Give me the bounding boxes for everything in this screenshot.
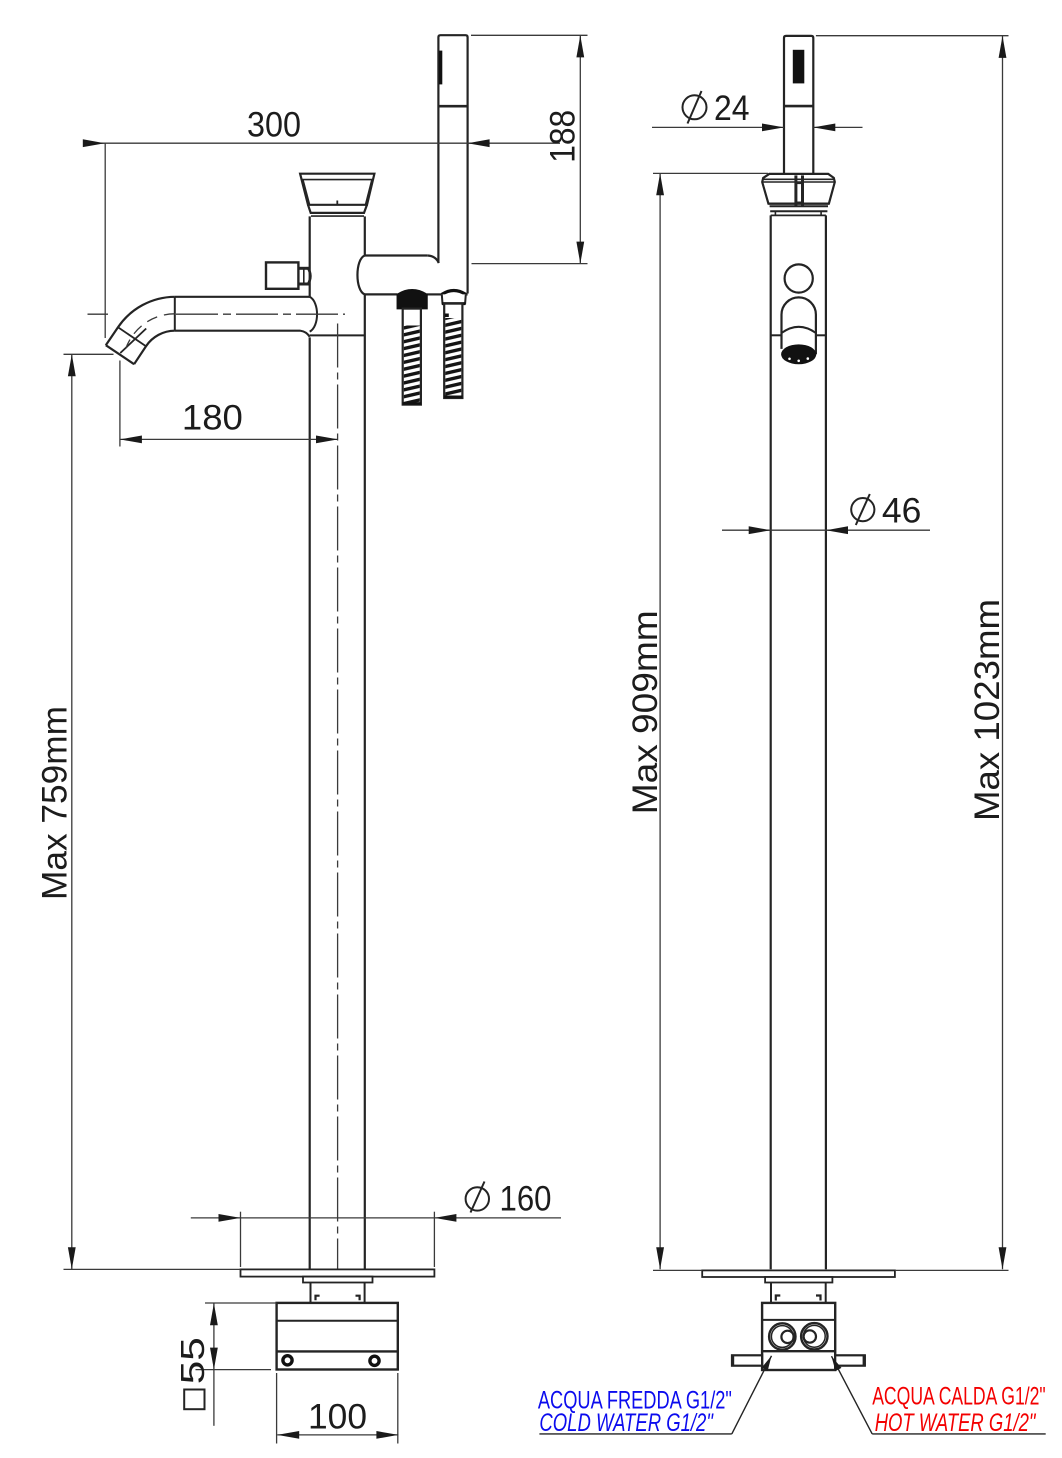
svg-text:Max 759mm: Max 759mm bbox=[36, 706, 75, 900]
svg-text:46: 46 bbox=[882, 491, 922, 530]
svg-text:HOT WATER G1/2": HOT WATER G1/2" bbox=[875, 1409, 1037, 1437]
svg-text:55: 55 bbox=[174, 1337, 211, 1384]
svg-text:Max 1023mm: Max 1023mm bbox=[968, 599, 1007, 821]
svg-text:180: 180 bbox=[182, 399, 243, 438]
svg-text:100: 100 bbox=[308, 1398, 367, 1437]
svg-text:ACQUA CALDA G1/2": ACQUA CALDA G1/2" bbox=[872, 1383, 1045, 1411]
svg-text:Max 909mm: Max 909mm bbox=[626, 610, 665, 814]
svg-text:188: 188 bbox=[544, 110, 583, 163]
svg-text:24: 24 bbox=[714, 89, 750, 128]
svg-text:COLD WATER G1/2": COLD WATER G1/2" bbox=[539, 1409, 713, 1437]
svg-text:300: 300 bbox=[247, 106, 301, 145]
svg-text:160: 160 bbox=[500, 1179, 552, 1218]
